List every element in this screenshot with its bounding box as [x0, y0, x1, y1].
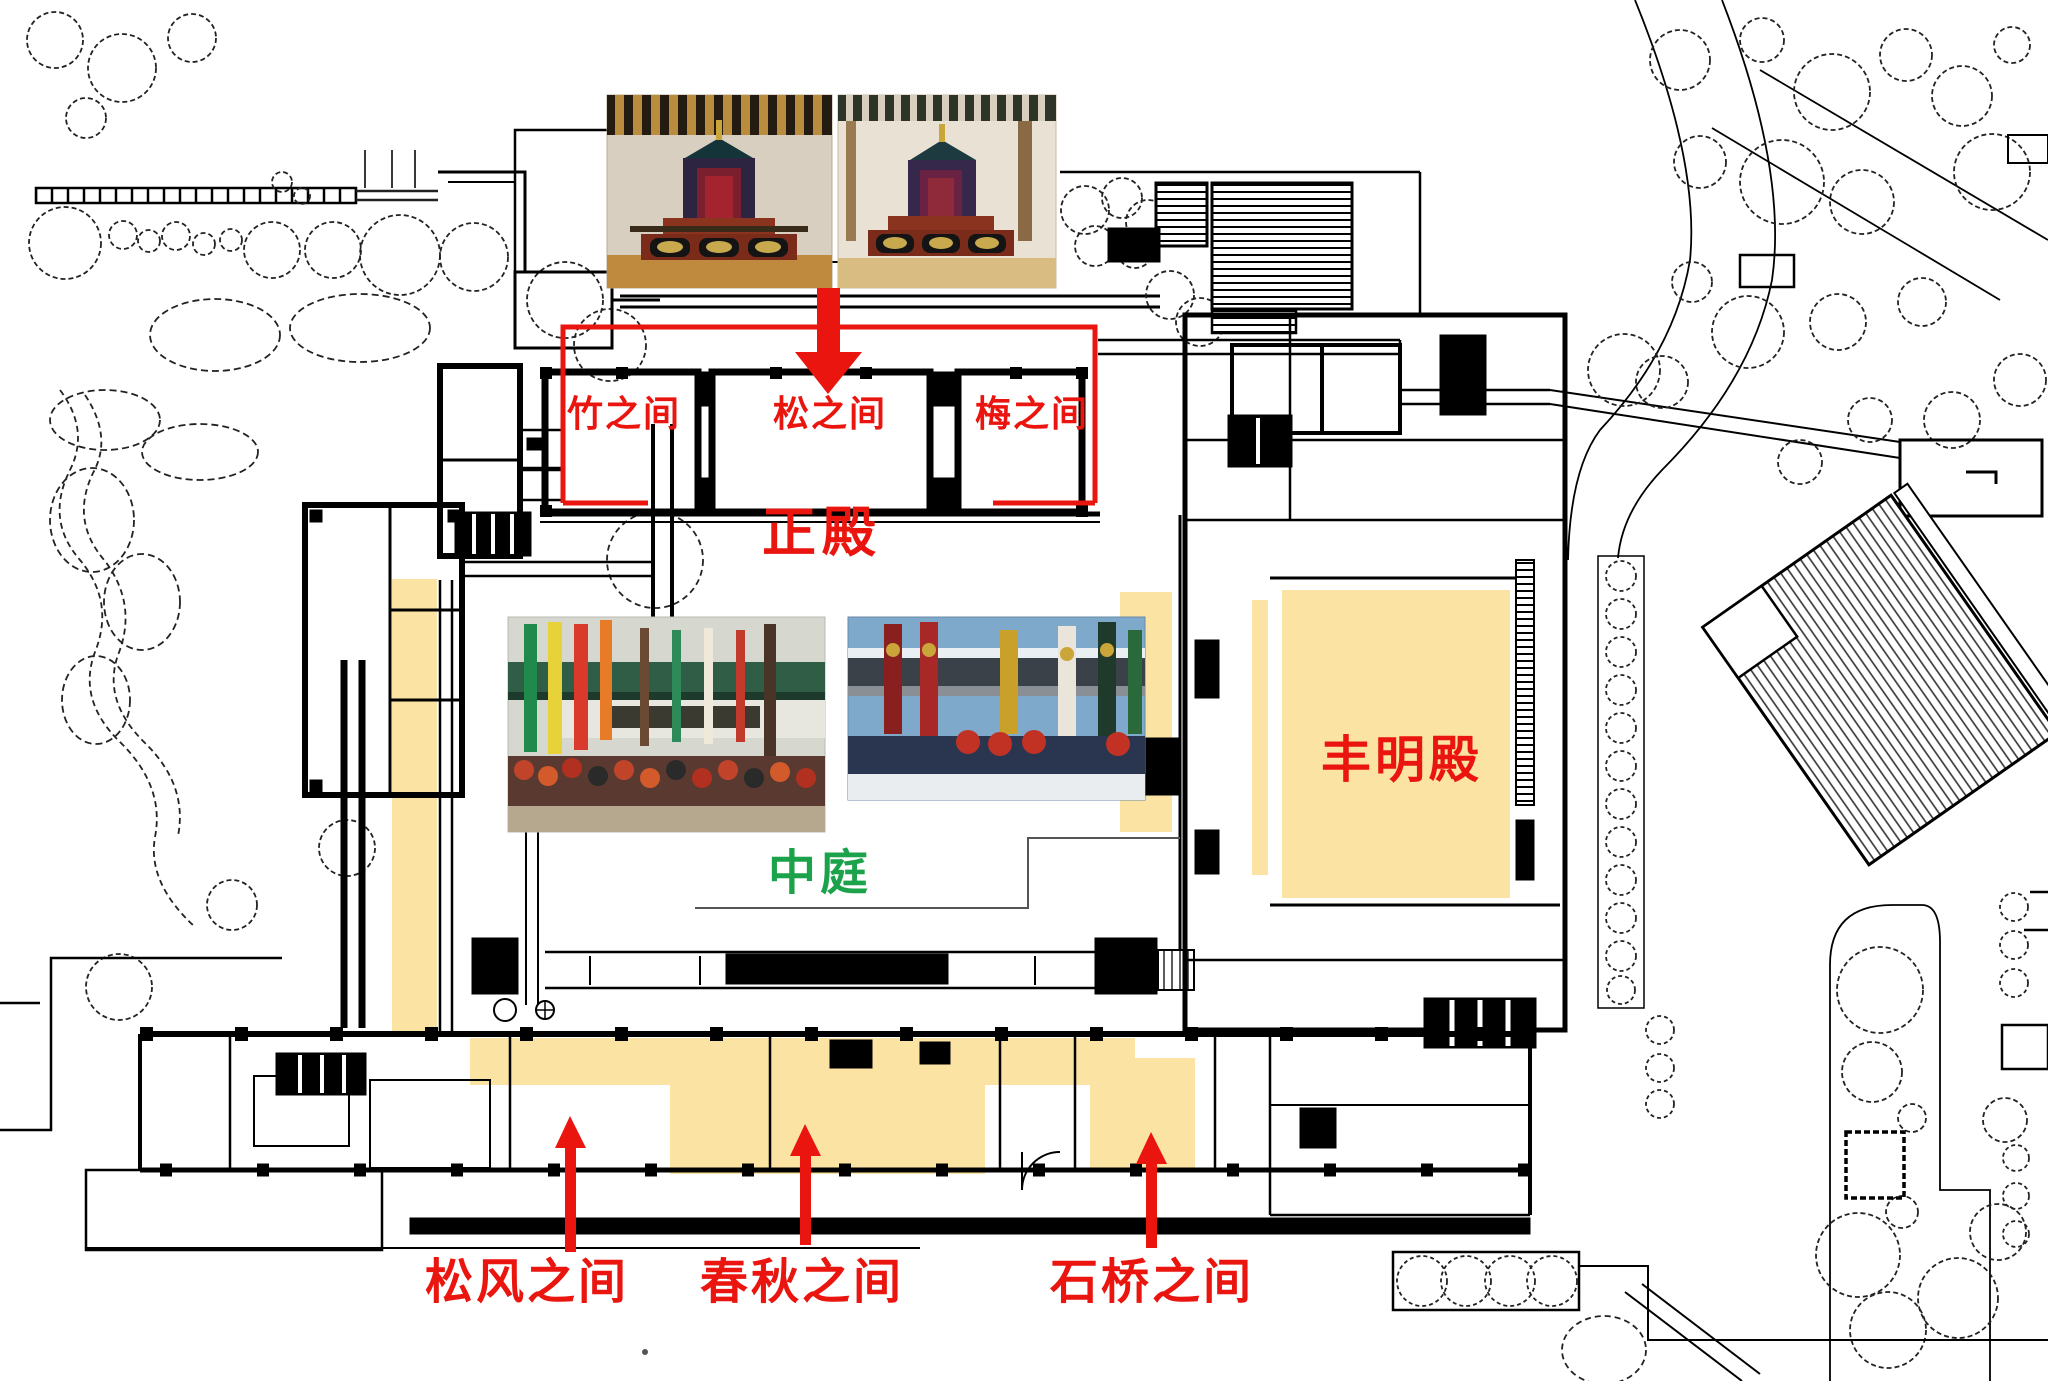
photo-banner-ceremony-1 [508, 617, 825, 832]
label-seiden: 正殿 [762, 506, 882, 560]
photo-banner-ceremony-2 [848, 617, 1145, 800]
photo-throne-room-1 [607, 95, 832, 288]
highlight-shunju-room [670, 1078, 985, 1174]
highlight-homeiden-strip [1252, 600, 1268, 875]
label-take-no-ma: 竹之间 [567, 396, 681, 432]
annotated-floor-plan: 竹之间 松之间 梅之间 正殿 中庭 丰明殿 松风之间 春秋之间 石桥之间 [0, 0, 2048, 1381]
label-courtyard: 中庭 [768, 850, 872, 898]
label-shofu-no-ma: 松风之间 [425, 1259, 629, 1307]
label-shakkyo-no-ma: 石桥之间 [1050, 1259, 1254, 1307]
photo-throne-room-2 [838, 95, 1056, 288]
label-ume-no-ma: 梅之间 [975, 396, 1089, 432]
label-shunju-no-ma: 春秋之间 [700, 1259, 904, 1307]
highlight-west-corridor [392, 579, 437, 1034]
label-matsu-no-ma: 松之间 [773, 396, 887, 432]
diagonal-roof-building [1703, 484, 2048, 865]
arrow-down-to-matsu [795, 288, 862, 394]
floor-plan-svg [0, 0, 2048, 1381]
label-homeiden: 丰明殿 [1321, 735, 1483, 785]
highlight-south-corridor [470, 1038, 1135, 1085]
